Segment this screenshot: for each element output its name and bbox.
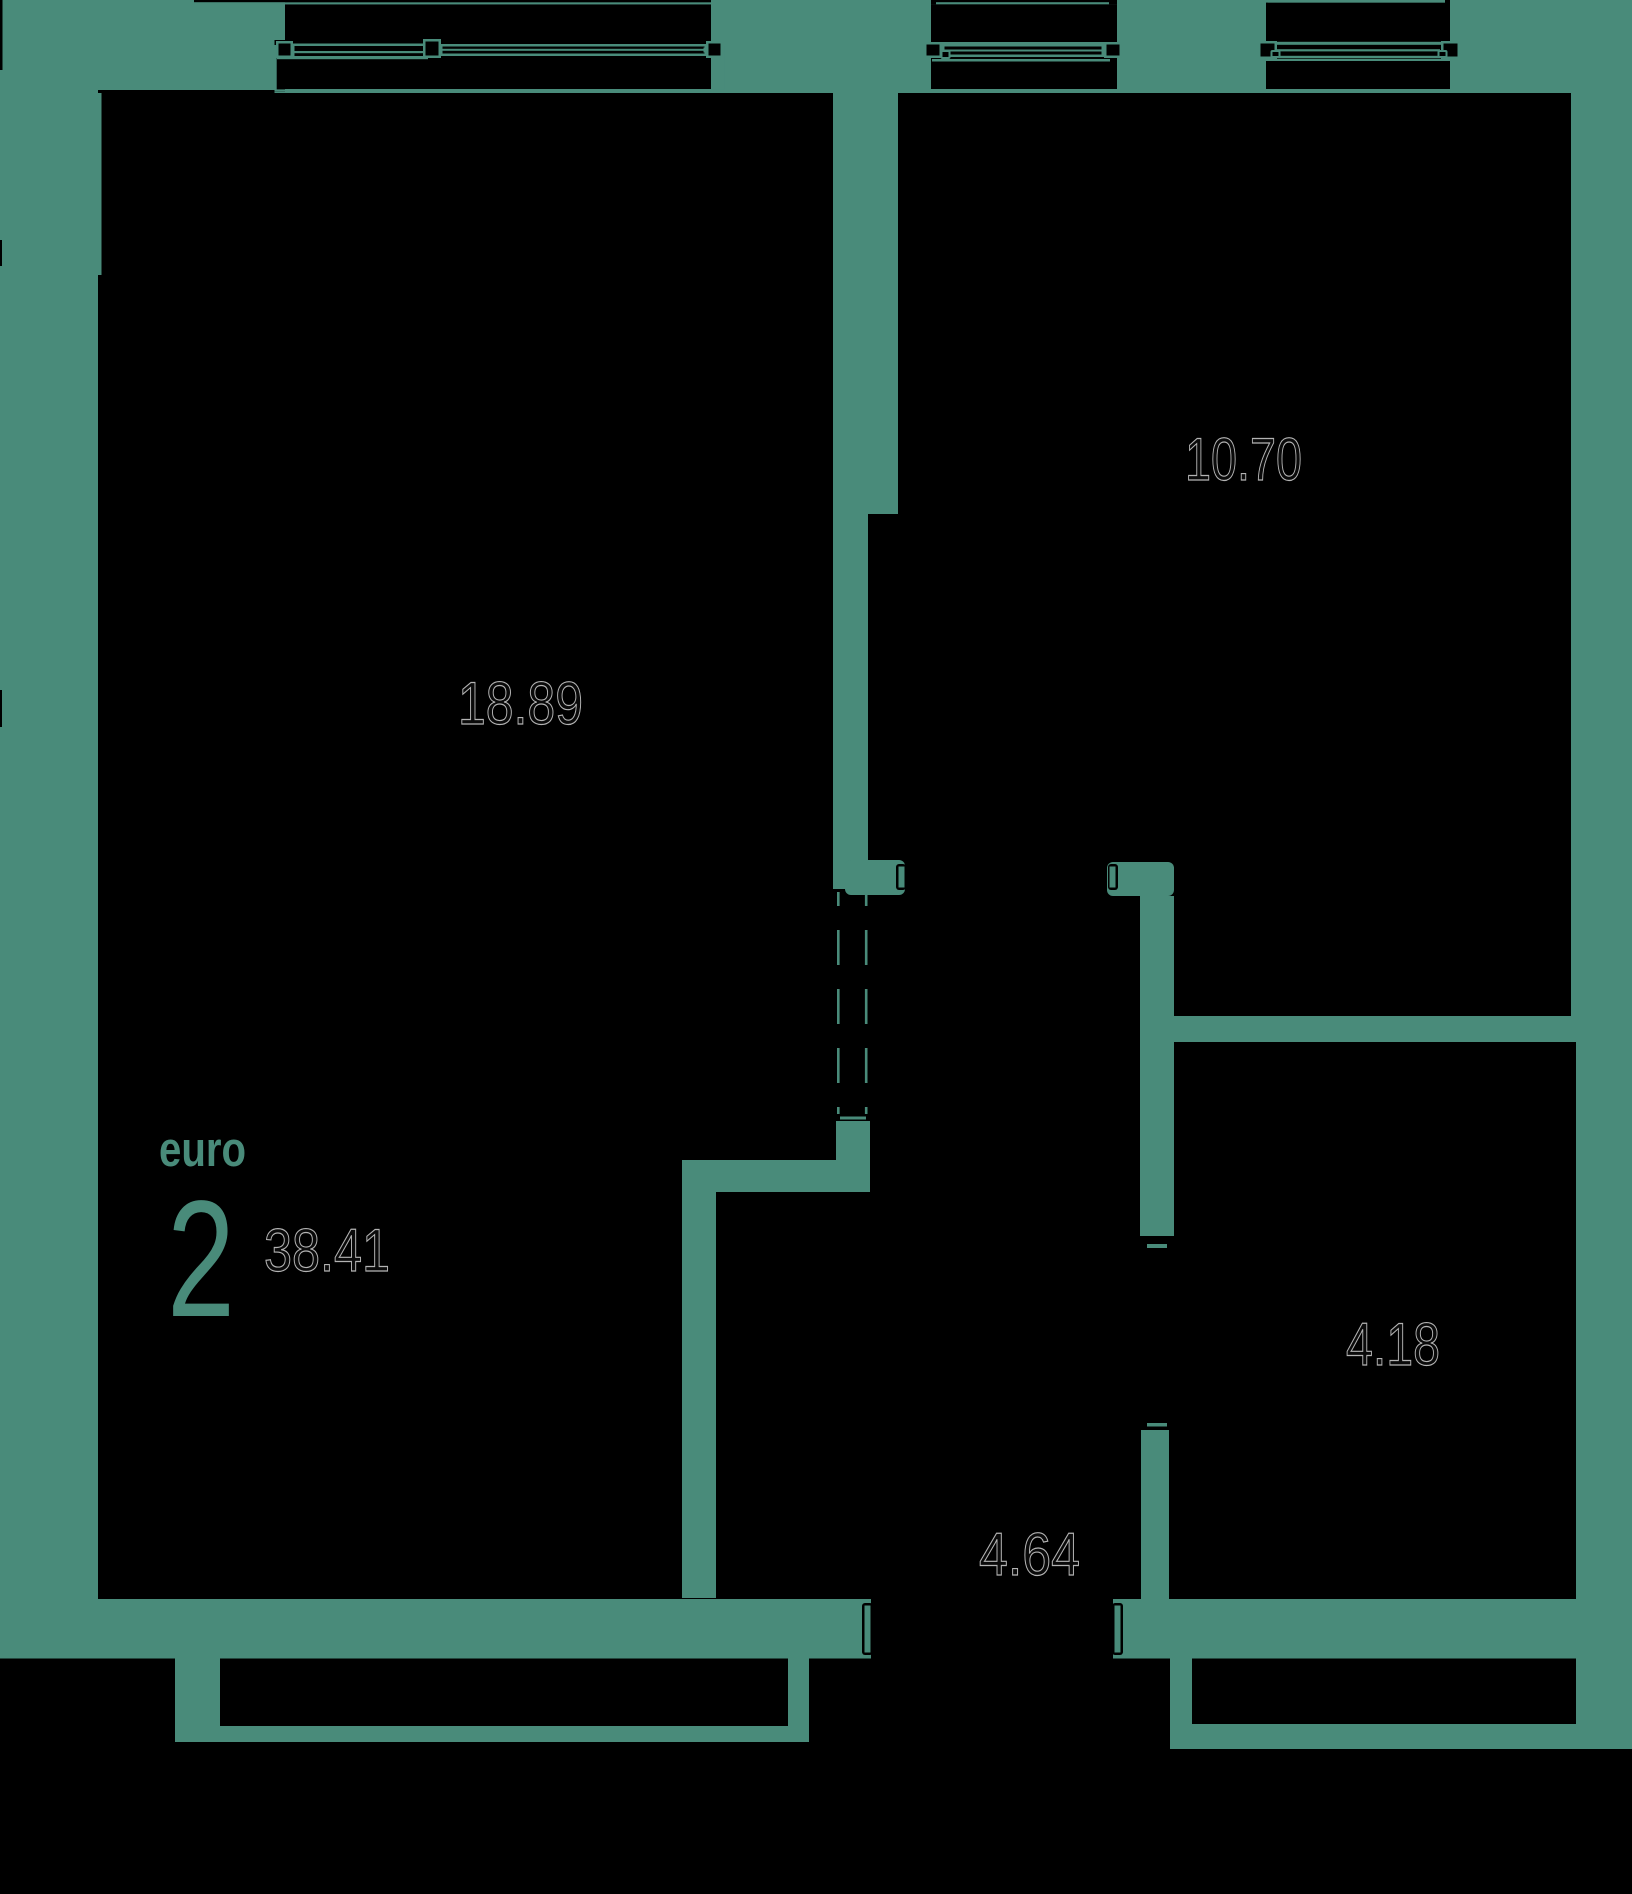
svg-text:38.41: 38.41 (264, 1217, 390, 1284)
svg-text:4.64: 4.64 (979, 1521, 1080, 1588)
svg-text:2: 2 (167, 1167, 235, 1352)
svg-text:18.89: 18.89 (458, 670, 583, 737)
svg-text:4.18: 4.18 (1346, 1311, 1440, 1378)
svg-text:10.70: 10.70 (1185, 426, 1302, 493)
